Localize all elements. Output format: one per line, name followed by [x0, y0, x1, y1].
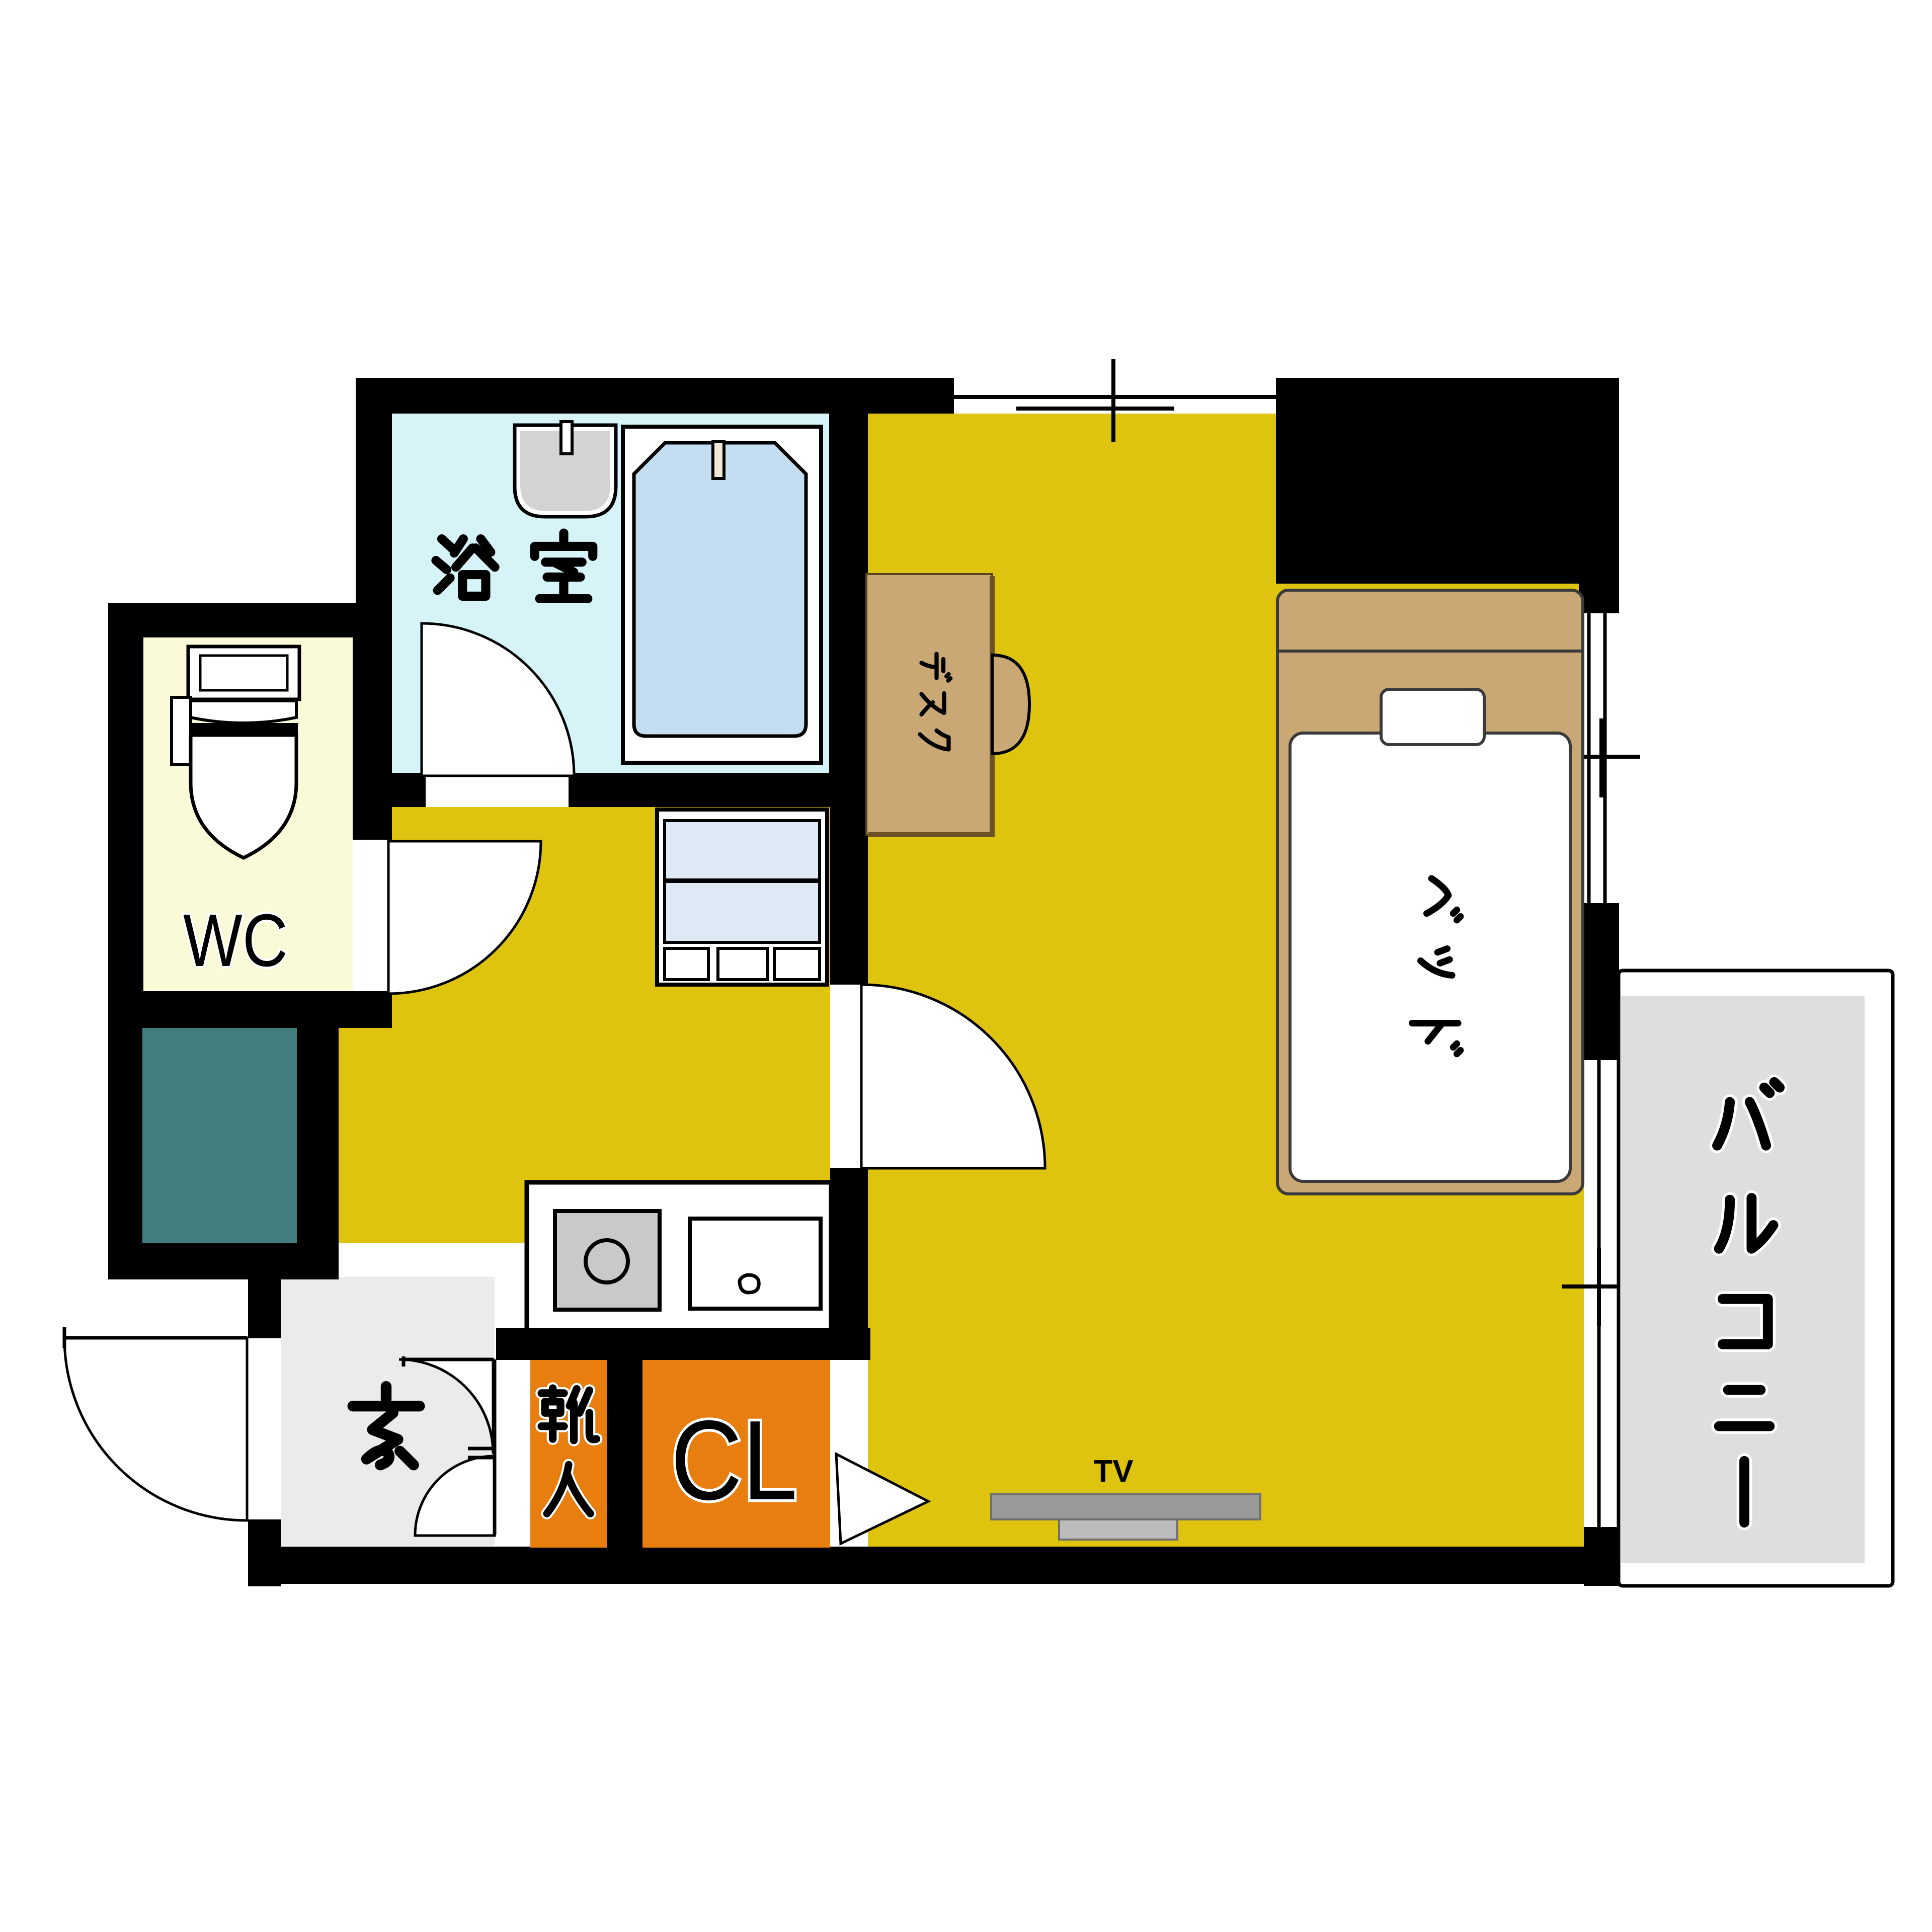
svg-text:TV: TV [1093, 1454, 1133, 1489]
svg-text:CL: CL [671, 1397, 797, 1523]
svg-text:WC: WC [183, 899, 288, 982]
